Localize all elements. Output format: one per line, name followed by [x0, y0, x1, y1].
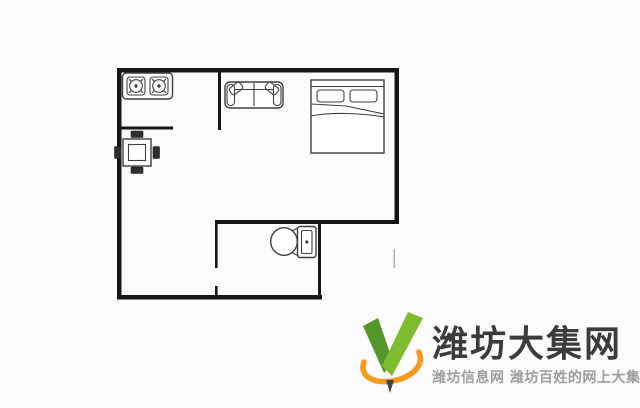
gas-stove-two-burner-icon	[123, 73, 173, 99]
chair-top	[131, 131, 143, 138]
watermark-subtitle: 潍坊信息网 潍坊百姓的网上大集	[432, 367, 640, 387]
floorplan-page: 潍坊大集网 潍坊信息网 潍坊百姓的网上大集	[0, 0, 640, 408]
wall-bottom	[117, 295, 322, 300]
wall-bathroom-left-stub	[215, 286, 218, 295]
watermark: 潍坊大集网 潍坊信息网 潍坊百姓的网上大集	[356, 310, 632, 402]
logo-pen-nib	[386, 380, 394, 393]
v-checkmark-swoosh-logo-icon	[356, 310, 430, 402]
double-bed-icon	[311, 80, 384, 153]
wall-bathroom-left-upper	[215, 224, 218, 268]
wall-bathroom-right	[318, 224, 321, 295]
toilet-icon	[271, 227, 316, 258]
wall-kitchen-partition	[218, 70, 221, 130]
chair-right	[153, 147, 160, 159]
two-seat-sofa-icon	[225, 81, 283, 108]
watermark-title: 潍坊大集网	[432, 325, 640, 365]
wall-mid-horizontal	[215, 220, 399, 224]
chair-left	[115, 147, 122, 159]
wall-right	[395, 68, 400, 224]
wall-kitchen-bottom	[117, 127, 173, 130]
wall-faint-dash	[394, 249, 396, 268]
toilet-bowl	[271, 228, 298, 256]
watermark-text: 潍坊大集网 潍坊信息网 潍坊百姓的网上大集	[432, 325, 640, 388]
wall-top	[117, 68, 399, 73]
chair-bottom	[131, 167, 143, 174]
wall-left	[117, 68, 122, 299]
